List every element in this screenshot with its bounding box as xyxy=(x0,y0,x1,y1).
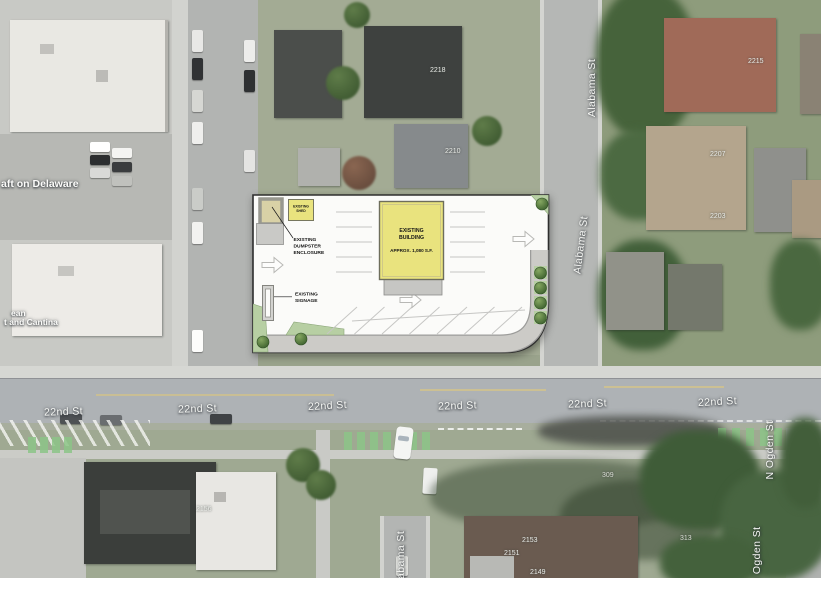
center-line xyxy=(96,394,334,396)
white-roof xyxy=(196,472,276,570)
house-number: 2215 xyxy=(748,58,764,65)
bike-lane-bar xyxy=(64,437,72,453)
street-label-alabama-north: Alabama St xyxy=(586,59,598,117)
street-label-n-ogden: N Ogden St xyxy=(764,421,776,480)
parked-car xyxy=(244,70,255,92)
house-number: 2153 xyxy=(522,537,538,544)
parking-tick-marks xyxy=(438,428,522,430)
site-plan-overlay: EXISTING SHED EXISTING BUILDING APPROX. … xyxy=(252,194,550,355)
dumpster-enclosure xyxy=(260,199,282,224)
parked-car xyxy=(192,58,203,80)
porch xyxy=(470,556,514,578)
house-roof-brick xyxy=(664,18,776,112)
shed-label: EXISTING xyxy=(293,205,309,209)
sign-structure-inner xyxy=(266,289,271,317)
tree-autumn xyxy=(342,156,376,190)
tree xyxy=(326,66,360,100)
plan-tree xyxy=(257,336,269,348)
shed-roof xyxy=(792,180,821,238)
house-roof xyxy=(668,264,722,330)
street-pavement xyxy=(544,0,598,378)
house-roof xyxy=(800,34,821,114)
angled-parking-stripes xyxy=(0,420,150,446)
signage-label: SIGNAGE xyxy=(295,298,318,304)
building-area-label: APPROX. 1,080 S.F. xyxy=(390,248,433,253)
bike-lane-bar xyxy=(52,437,60,453)
house-number: 2207 xyxy=(710,151,726,158)
dumpster-label: EXISTING xyxy=(294,237,317,243)
shed-label: SHED xyxy=(296,209,306,213)
dumpster-label: DUMPSTER xyxy=(294,244,322,250)
house-roof xyxy=(394,124,468,188)
parked-car xyxy=(244,40,255,62)
tree xyxy=(306,470,336,500)
parked-car xyxy=(112,162,132,172)
bike-lane-bar xyxy=(344,432,352,450)
building-label: EXISTING xyxy=(399,228,423,234)
street-label-n-ogden: N Ogden St xyxy=(751,527,763,578)
bike-lane-bar xyxy=(422,432,430,450)
dumpster-pad xyxy=(257,224,284,245)
parked-car xyxy=(112,176,132,186)
house-number: 2149 xyxy=(530,569,546,576)
house-number: 2210 xyxy=(445,148,461,155)
plan-tree xyxy=(295,333,307,345)
parked-car xyxy=(90,155,110,165)
roof-vent xyxy=(58,266,74,276)
house-number: 2218 xyxy=(430,67,446,74)
bike-lane-bar xyxy=(746,428,754,446)
bike-lane-bar xyxy=(28,437,36,453)
parked-car xyxy=(90,142,110,152)
roof-vent xyxy=(40,44,54,54)
street-label-22nd-st: 22nd St xyxy=(178,402,217,415)
parked-car xyxy=(192,222,203,244)
sidewalk xyxy=(172,0,188,378)
poi-label-delaware: aft on Delaware xyxy=(1,178,79,190)
tree-canopy xyxy=(770,240,821,330)
plan-tree xyxy=(535,297,547,309)
house-number: 309 xyxy=(602,472,614,479)
street-label-alabama-south: Alabama St xyxy=(395,531,407,578)
garage-roof xyxy=(298,148,340,186)
parked-car xyxy=(192,330,203,352)
street-label-22nd-st: 22nd St xyxy=(44,405,83,418)
parked-car xyxy=(192,122,203,144)
site-plan-page: 22nd St 22nd St 22nd St 22nd St 22nd St … xyxy=(0,0,831,595)
bike-lane-bar xyxy=(40,437,48,453)
house-number: 2151 xyxy=(504,550,520,557)
parked-car xyxy=(192,90,203,112)
parked-car xyxy=(112,148,132,158)
signage-label: EXISTING xyxy=(295,292,318,298)
dumpster-label: ENCLOSURE xyxy=(294,250,325,256)
street-label-22nd-st: 22nd St xyxy=(308,399,348,413)
street-label-22nd-st: 22nd St xyxy=(568,397,607,410)
bike-lane-bar xyxy=(383,432,391,450)
center-line xyxy=(604,386,724,388)
parked-car xyxy=(244,150,255,172)
sidewalk-north xyxy=(0,366,821,378)
bike-lane-bar xyxy=(370,432,378,450)
center-line xyxy=(420,389,546,391)
tree-canopy xyxy=(660,535,760,578)
garage-roof xyxy=(606,252,664,330)
house-roof xyxy=(646,126,746,230)
commercial-roof xyxy=(10,20,168,132)
sidewalk-vertical xyxy=(316,430,330,578)
parked-car xyxy=(192,30,203,52)
tree-canopy xyxy=(780,418,821,508)
building-apron xyxy=(384,278,442,295)
concrete-block-bottomleft xyxy=(0,458,86,578)
plan-tree xyxy=(535,312,547,324)
parked-car xyxy=(210,414,232,424)
house-number: 2203 xyxy=(710,213,726,220)
tree xyxy=(472,116,502,146)
plan-tree xyxy=(536,198,548,210)
building-label: BUILDING xyxy=(399,235,424,241)
street-label-22nd-st: 22nd St xyxy=(438,399,477,412)
roof-detail xyxy=(100,490,190,534)
road-alabama-south xyxy=(426,516,430,578)
poi-label-cantina-line2: t and Cantina xyxy=(4,317,58,327)
house-number: 2156 xyxy=(196,506,212,513)
parked-car xyxy=(90,168,110,178)
house-roof xyxy=(364,26,462,118)
roof-vent xyxy=(214,492,226,502)
street-label-22nd-st: 22nd St xyxy=(698,395,738,409)
plan-tree xyxy=(535,282,547,294)
plan-tree xyxy=(535,267,547,279)
house-number: 313 xyxy=(680,535,692,542)
parked-car xyxy=(192,188,203,210)
bike-lane-bar xyxy=(357,432,365,450)
roof-vent xyxy=(96,70,108,82)
tree xyxy=(344,2,370,28)
